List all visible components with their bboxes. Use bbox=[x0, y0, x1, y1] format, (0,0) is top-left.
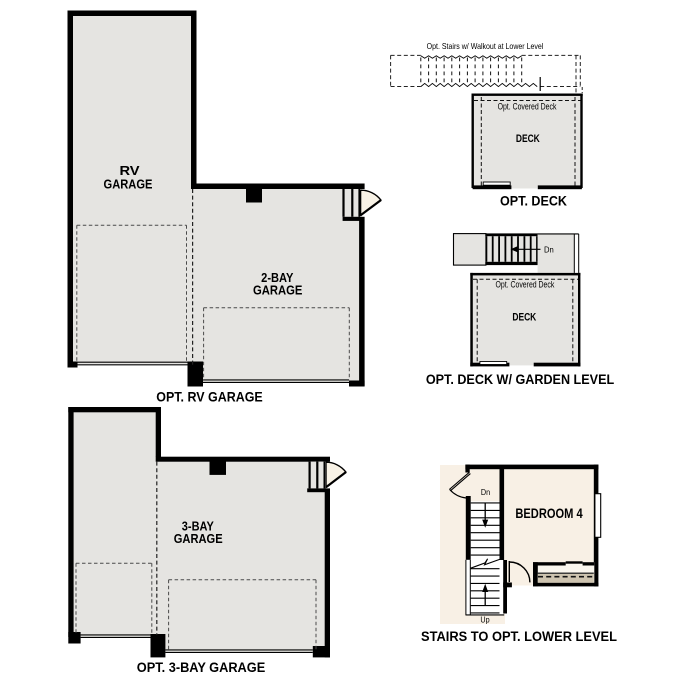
svg-text:OPT. 3-BAY GARAGE: OPT. 3-BAY GARAGE bbox=[137, 660, 265, 676]
svg-text:GARAGE: GARAGE bbox=[104, 176, 153, 191]
svg-text:OPT. DECK: OPT. DECK bbox=[500, 193, 567, 209]
svg-text:Dn: Dn bbox=[544, 245, 554, 254]
svg-text:DECK: DECK bbox=[516, 133, 540, 145]
svg-text:Opt. Covered Deck: Opt. Covered Deck bbox=[495, 280, 555, 290]
svg-text:OPT. DECK W/ GARDEN LEVEL: OPT. DECK W/ GARDEN LEVEL bbox=[426, 371, 614, 387]
svg-text:Opt. Covered Deck: Opt. Covered Deck bbox=[498, 101, 558, 111]
svg-text:Up: Up bbox=[480, 615, 490, 625]
svg-text:Opt. Stairs w/ Walkout at Lowe: Opt. Stairs w/ Walkout at Lower Level bbox=[427, 41, 544, 51]
svg-text:STAIRS TO OPT. LOWER LEVEL: STAIRS TO OPT. LOWER LEVEL bbox=[421, 628, 617, 644]
svg-text:Dn: Dn bbox=[481, 488, 490, 498]
svg-text:GARAGE: GARAGE bbox=[253, 283, 302, 298]
svg-text:OPT. RV GARAGE: OPT. RV GARAGE bbox=[156, 389, 263, 405]
svg-text:DECK: DECK bbox=[512, 312, 536, 324]
svg-text:BEDROOM 4: BEDROOM 4 bbox=[515, 506, 582, 522]
svg-text:GARAGE: GARAGE bbox=[174, 531, 223, 546]
